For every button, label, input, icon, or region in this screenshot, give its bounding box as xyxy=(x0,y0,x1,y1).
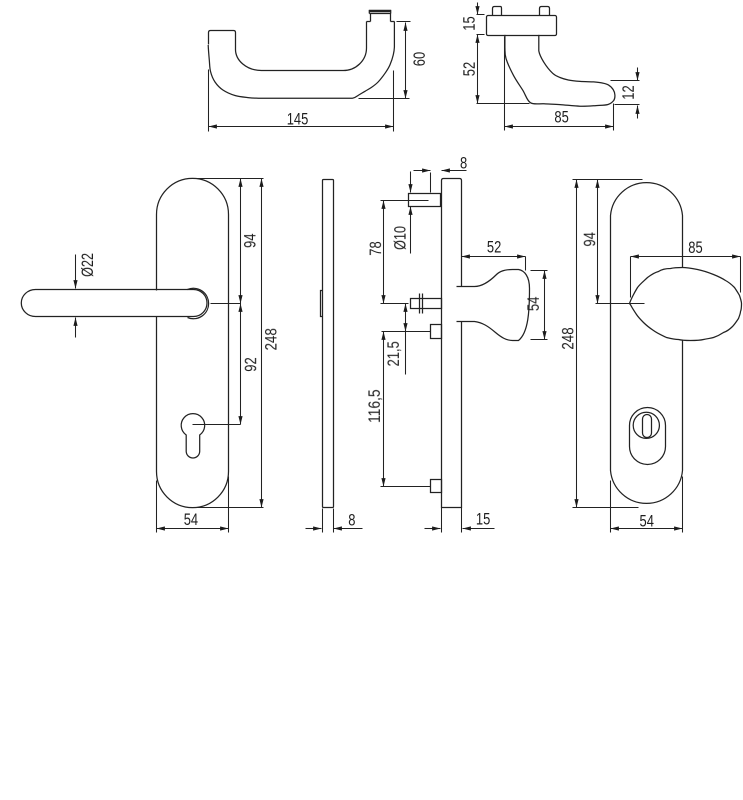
svg-text:Ø10: Ø10 xyxy=(391,226,410,250)
svg-text:52: 52 xyxy=(487,238,501,257)
svg-text:85: 85 xyxy=(688,238,702,257)
svg-text:248: 248 xyxy=(262,328,281,350)
svg-text:15: 15 xyxy=(476,510,490,529)
svg-text:92: 92 xyxy=(241,357,260,371)
svg-text:60: 60 xyxy=(410,52,429,66)
svg-text:54: 54 xyxy=(640,511,654,530)
svg-text:94: 94 xyxy=(580,232,599,246)
svg-text:Ø22: Ø22 xyxy=(78,253,97,277)
svg-text:54: 54 xyxy=(184,510,198,529)
svg-text:54: 54 xyxy=(524,297,543,311)
svg-text:8: 8 xyxy=(460,153,467,172)
svg-text:248: 248 xyxy=(558,327,577,349)
svg-text:94: 94 xyxy=(241,234,260,248)
svg-text:78: 78 xyxy=(366,241,385,255)
svg-text:15: 15 xyxy=(460,16,479,30)
svg-text:145: 145 xyxy=(287,109,309,128)
svg-text:116,5: 116,5 xyxy=(365,389,384,423)
svg-text:12: 12 xyxy=(619,85,638,99)
svg-text:52: 52 xyxy=(460,62,479,76)
svg-text:8: 8 xyxy=(348,511,355,530)
svg-text:21,5: 21,5 xyxy=(384,341,403,366)
svg-text:85: 85 xyxy=(554,107,568,126)
